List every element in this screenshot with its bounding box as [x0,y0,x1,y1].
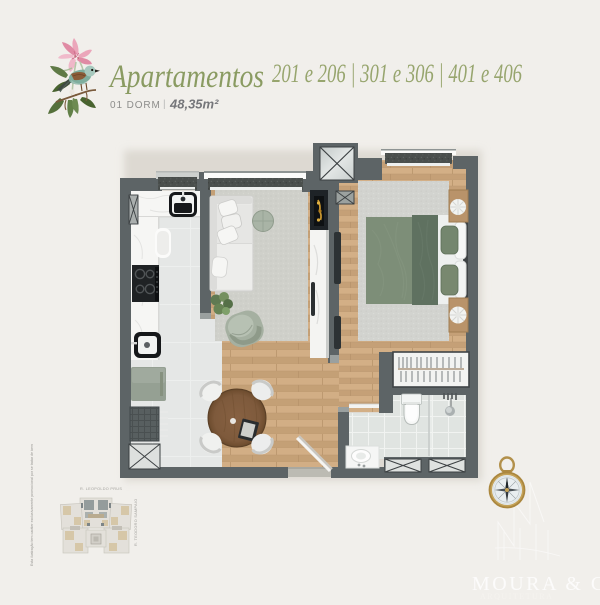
svg-text:Apartamentos: Apartamentos [108,59,264,95]
svg-text:R. TEODORO SAMPAIO: R. TEODORO SAMPAIO [134,499,138,546]
svg-text:R. LEOPOLDO PRUS: R. LEOPOLDO PRUS [80,487,122,491]
svg-text:201 e 206 | 301 e 306 | 401 e: 201 e 206 | 301 e 306 | 401 e 406 [272,59,522,88]
svg-text:|: | [163,99,166,110]
svg-text:01 DORM: 01 DORM [110,100,161,111]
svg-text:Esta ilustração tem caráter ex: Esta ilustração tem caráter exclusivamen… [29,443,34,566]
svg-text:ARQUITETURA: ARQUITETURA [480,592,553,600]
svg-text:48,35m²: 48,35m² [169,97,219,112]
